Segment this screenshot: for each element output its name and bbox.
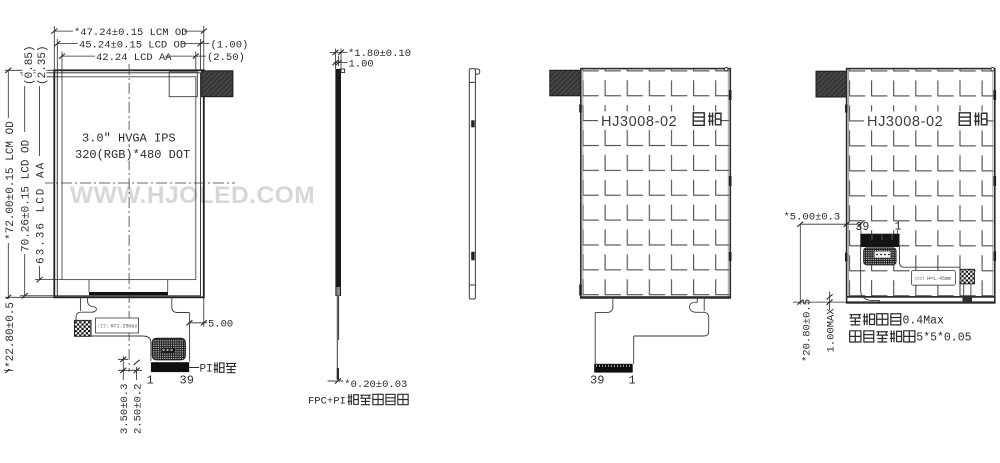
svg-text:*72.00±0.15 LCM OD: *72.00±0.15 LCM OD xyxy=(5,121,17,240)
svg-text:3.50±0.3: 3.50±0.3 xyxy=(119,384,131,434)
svg-text:HJ3008-02: HJ3008-02 xyxy=(867,114,943,130)
svg-text:39: 39 xyxy=(590,374,604,388)
svg-text:0.4Max: 0.4Max xyxy=(903,314,945,327)
svg-text:39: 39 xyxy=(180,374,194,388)
svg-text:(1.00): (1.00) xyxy=(211,39,249,51)
svg-text:*20.80±0.5: *20.80±0.5 xyxy=(801,299,813,362)
svg-text:*0.20±0.03: *0.20±0.03 xyxy=(344,379,407,391)
svg-text:320(RGB)*480 DOT: 320(RGB)*480 DOT xyxy=(75,148,190,162)
svg-text:(0.85): (0.85) xyxy=(24,45,36,85)
svg-text:WWW.HJOLED.COM: WWW.HJOLED.COM xyxy=(70,182,315,209)
svg-text:(2.50): (2.50) xyxy=(207,52,245,64)
svg-text:3.0″ HVGA IPS: 3.0″ HVGA IPS xyxy=(82,132,176,146)
svg-text:1: 1 xyxy=(147,374,154,388)
svg-text:63.36 LCD AA: 63.36 LCD AA xyxy=(35,161,47,264)
svg-text:1.00MAX: 1.00MAX xyxy=(825,308,837,353)
svg-text:39: 39 xyxy=(856,221,870,234)
svg-text:45.24±0.15 LCD OD: 45.24±0.15 LCD OD xyxy=(79,39,186,51)
svg-text:42.24 LCD AA: 42.24 LCD AA xyxy=(96,52,172,64)
svg-text:1: 1 xyxy=(895,221,902,234)
svg-text:*47.24±0.15 LCM OD: *47.24±0.15 LCM OD xyxy=(74,27,187,39)
svg-text:(2.35): (2.35) xyxy=(37,45,49,85)
svg-text:2.50±0.2: 2.50±0.2 xyxy=(133,384,145,434)
svg-text:5.00: 5.00 xyxy=(208,319,233,331)
svg-text:□□□ H=1.25max: □□□ H=1.25max xyxy=(99,324,138,330)
svg-text:HJ3008-02: HJ3008-02 xyxy=(601,114,677,130)
svg-text:*22.80±0.5: *22.80±0.5 xyxy=(5,302,17,368)
svg-text:70.26±0.15 LCD OD: 70.26±0.15 LCD OD xyxy=(21,139,33,252)
svg-text:5*5*0.05: 5*5*0.05 xyxy=(916,331,971,344)
svg-text:PI: PI xyxy=(200,364,213,376)
svg-text:1: 1 xyxy=(629,374,636,388)
svg-text:FPC+PI: FPC+PI xyxy=(308,396,346,408)
svg-text:□□□ H=1.45mm: □□□ H=1.45mm xyxy=(915,276,951,282)
svg-text:1.00: 1.00 xyxy=(349,58,374,70)
svg-text:*5.00±0.3: *5.00±0.3 xyxy=(784,212,841,224)
